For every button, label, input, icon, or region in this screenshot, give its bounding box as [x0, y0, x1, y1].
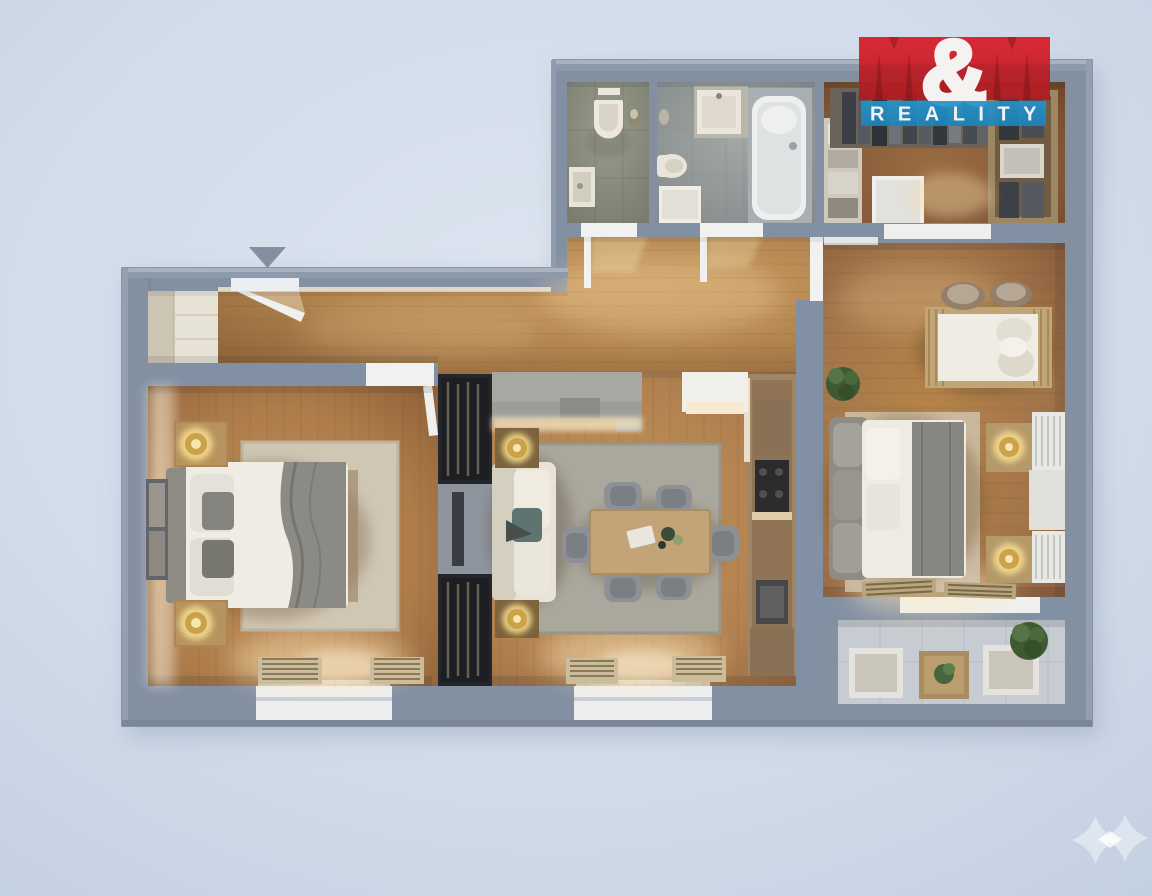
- svg-text:REALITY: REALITY: [870, 104, 1050, 126]
